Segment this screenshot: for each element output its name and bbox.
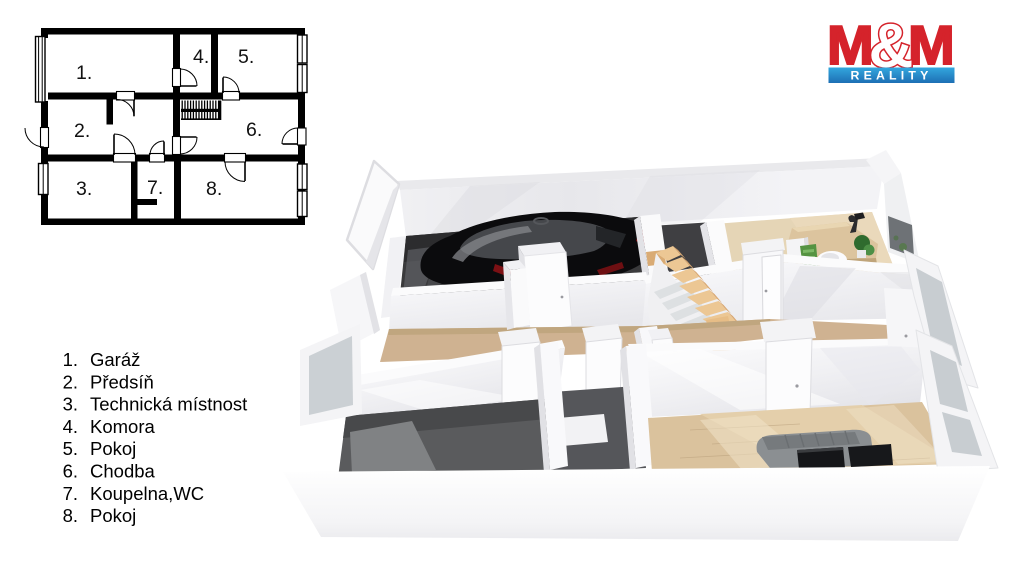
svg-text:8.: 8. — [63, 505, 78, 526]
svg-text:1.: 1. — [76, 62, 92, 84]
svg-text:REALITY: REALITY — [850, 69, 932, 83]
svg-text:Pokoj: Pokoj — [90, 505, 136, 526]
svg-text:5.: 5. — [63, 438, 78, 459]
svg-text:5.: 5. — [238, 46, 254, 68]
svg-text:Komora: Komora — [90, 416, 155, 437]
svg-text:4.: 4. — [63, 416, 78, 437]
svg-text:8.: 8. — [206, 178, 222, 200]
svg-text:7.: 7. — [63, 483, 78, 504]
svg-text:3.: 3. — [63, 394, 78, 415]
svg-text:M: M — [908, 14, 955, 75]
svg-text:Předsíň: Předsíň — [90, 371, 154, 392]
svg-text:6.: 6. — [63, 461, 78, 482]
svg-text:Koupelna,WC: Koupelna,WC — [90, 483, 204, 504]
svg-text:Chodba: Chodba — [90, 461, 156, 482]
svg-text:Pokoj: Pokoj — [90, 438, 136, 459]
svg-text:Garáž: Garáž — [90, 349, 140, 370]
svg-text:7.: 7. — [147, 177, 163, 199]
svg-text:6.: 6. — [246, 119, 262, 141]
svg-text:M: M — [827, 14, 874, 75]
svg-text:Technická místnost: Technická místnost — [90, 394, 247, 415]
svg-text:2.: 2. — [63, 371, 78, 392]
svg-text:3.: 3. — [76, 178, 92, 200]
svg-text:4.: 4. — [193, 46, 209, 68]
svg-text:1.: 1. — [63, 349, 78, 370]
svg-text:2.: 2. — [74, 120, 90, 142]
